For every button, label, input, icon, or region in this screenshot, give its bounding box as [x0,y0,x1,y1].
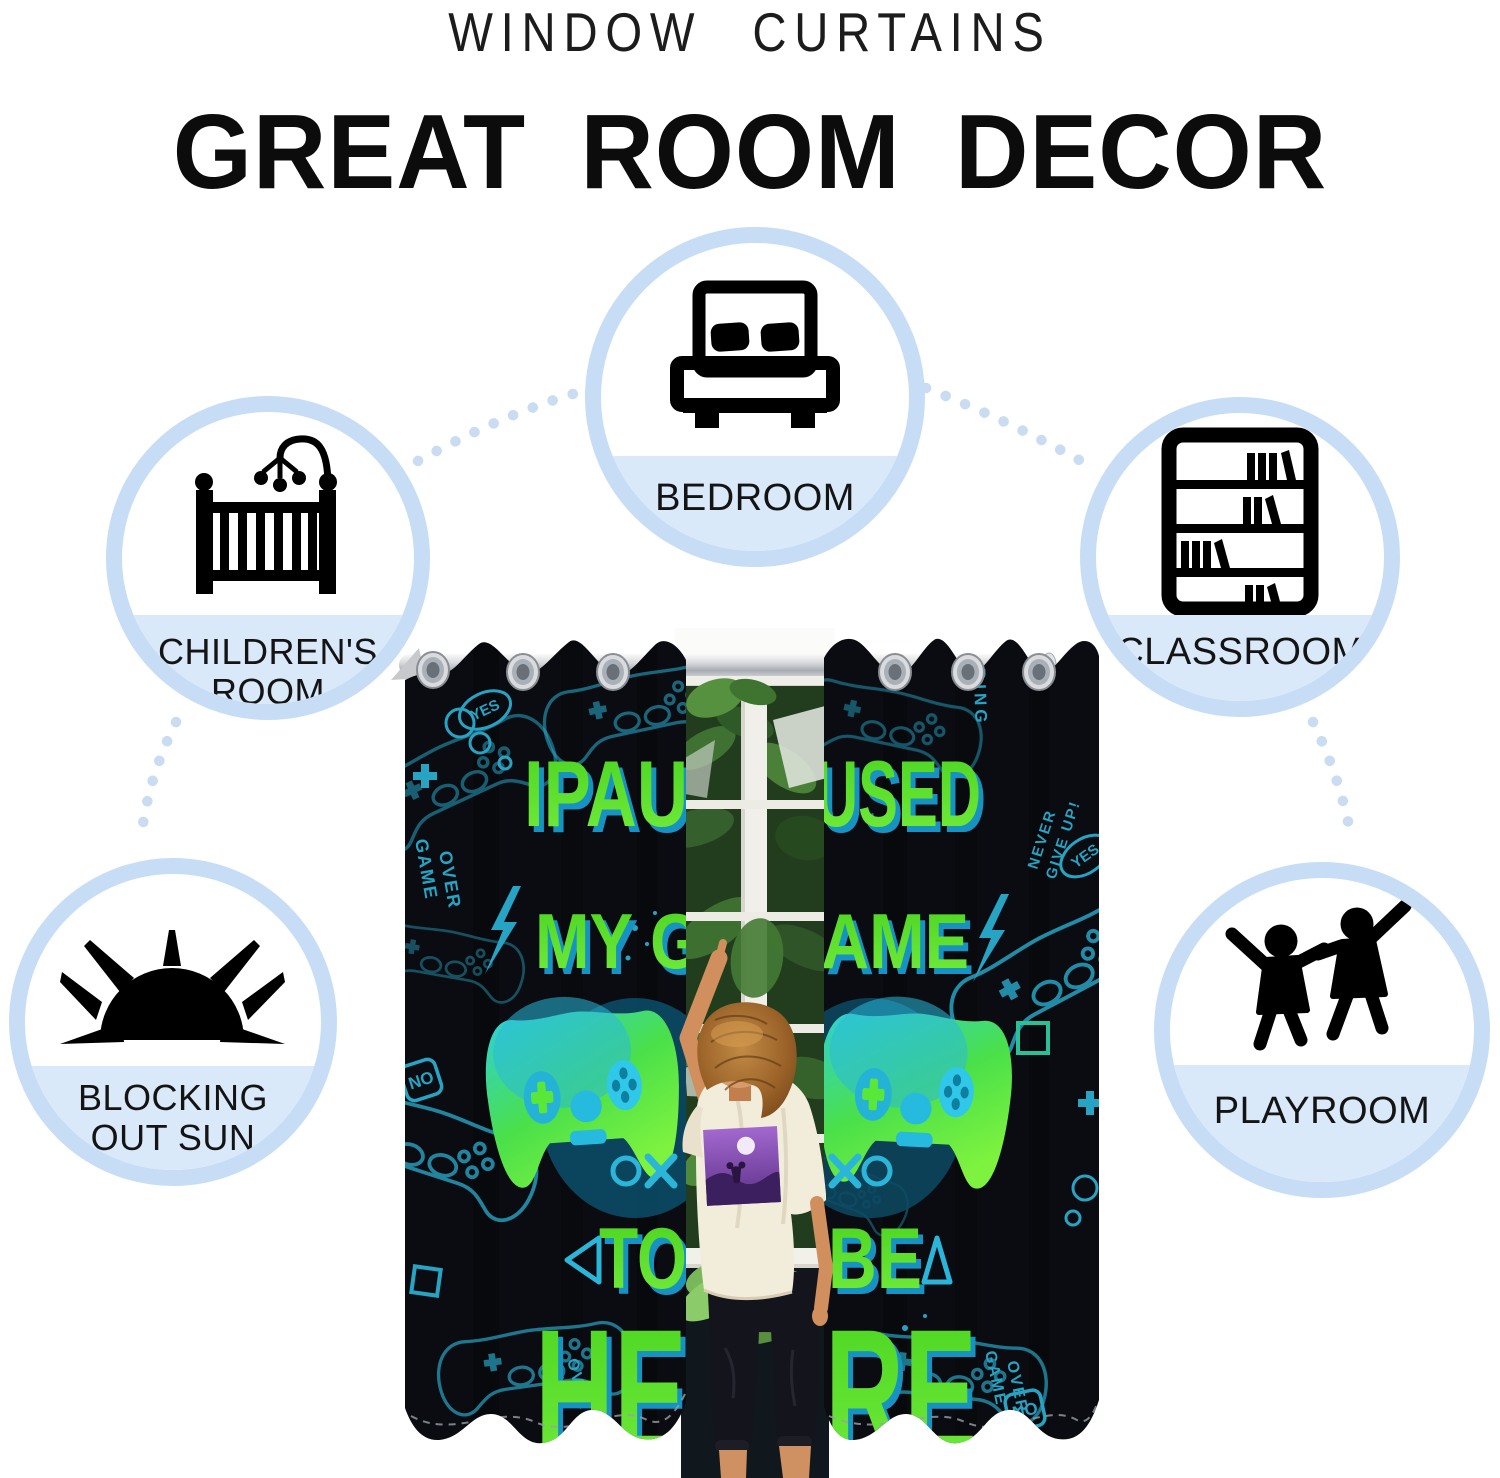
grommet [952,654,984,690]
grommet [879,654,911,690]
feature-label: BEDROOM [601,477,909,519]
feature-label: CHILDREN'S ROOM [122,632,414,712]
boy-hanging-arm [817,1203,826,1308]
feature-label: CLASSROOM [1096,631,1384,673]
hair-highlight [711,1021,763,1047]
svg-text:USED: USED [815,741,981,846]
connector-childrens-sun [141,722,176,838]
bookshelf-icon [1155,425,1325,620]
boy-left-calf [719,1450,747,1478]
svg-text:HE: HE [535,1291,687,1478]
tshirt-graphic [703,1126,781,1206]
curtain-scene: YES ADING GAME OVER GAME OVER NO IP [385,628,1125,1478]
feature-circle-childrens-room: CHILDREN'S ROOM [106,396,430,720]
connector-bedroom-classroom [926,388,1090,466]
product-photo: YES ADING GAME OVER GAME OVER NO IP [385,628,1125,1478]
feature-label: PLAYROOM [1170,1090,1474,1132]
sun-icon [60,928,285,1050]
grommet [417,652,449,688]
boy-right-calf [779,1446,811,1478]
grommet [597,654,629,690]
boy-pointing-finger [719,943,723,958]
svg-text:RE: RE [825,1291,977,1478]
feature-circle-playroom: PLAYROOM [1154,862,1490,1198]
svg-text:AME: AME [821,897,969,985]
bed-icon [655,279,855,441]
feature-label: BLOCKING OUT SUN [25,1078,321,1158]
product-infographic: WINDOW CURTAINS GREAT ROOM DECOR BEDROOM [0,0,1500,1478]
crib-icon [168,426,368,604]
svg-text:IPAU: IPAU [524,741,688,846]
playing-kids-icon [1217,894,1427,1054]
grommet [507,654,539,690]
connector-classroom-playroom [1313,722,1351,836]
boy-hand [812,1306,828,1326]
svg-text:MY G: MY G [535,897,701,985]
connector-childrens-bedroom [418,391,583,461]
feature-circle-blocking-out-sun: BLOCKING OUT SUN [9,858,337,1186]
feature-circle-bedroom: BEDROOM [585,227,925,567]
grommet [1023,654,1055,690]
feature-circle-classroom: CLASSROOM [1080,397,1400,717]
